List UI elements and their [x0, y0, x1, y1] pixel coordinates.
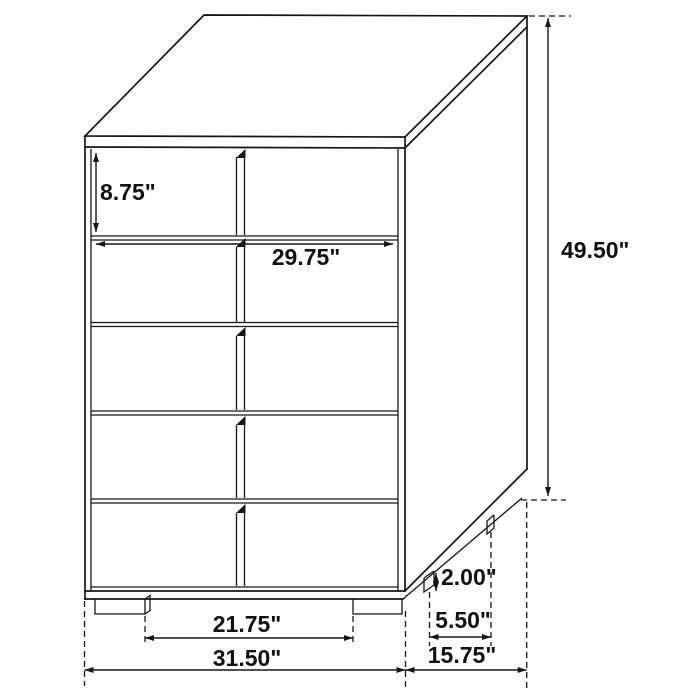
dim-label-overall-width: 31.50" — [213, 645, 281, 671]
top-slab-lower-edge — [85, 27, 527, 148]
diagram-canvas: 8.75" 29.75" 49.50" 2.00" 5.50" 21.75" 3… — [0, 0, 700, 700]
drawer-separator-3 — [91, 411, 398, 415]
front-right-foot — [353, 599, 402, 614]
front-left-foot — [95, 599, 145, 614]
drawer-handle-2 — [236, 238, 246, 322]
drawer-handle-3 — [236, 327, 246, 410]
dim-label-leg-height: 2.00" — [441, 564, 497, 590]
drawer-separator-4 — [91, 499, 398, 503]
dim-label-overall-depth: 15.75" — [428, 642, 496, 668]
dim-label-side-leg-spacing: 5.50" — [435, 607, 491, 633]
top-face — [85, 15, 527, 137]
dimension-annotations: 8.75" 29.75" 49.50" 2.00" 5.50" 21.75" 3… — [85, 16, 630, 690]
dim-label-overall-height: 49.50" — [561, 237, 629, 263]
dim-label-front-leg-spacing: 21.75" — [213, 611, 281, 637]
chest-drawing — [85, 15, 527, 614]
drawer-handle-4 — [236, 416, 246, 498]
dim-label-drawer-height: 8.75" — [100, 179, 156, 205]
drawer-handles — [236, 149, 246, 586]
dim-label-drawer-width: 29.75" — [272, 244, 340, 270]
chest-top-surface — [85, 15, 527, 148]
drawer-handle-5 — [236, 504, 246, 586]
chest-side-panel — [403, 16, 527, 599]
drawer-handle-1 — [236, 149, 246, 235]
furniture-dimension-diagram: 8.75" 29.75" 49.50" 2.00" 5.50" 21.75" 3… — [0, 0, 700, 700]
drawer-separator-2 — [91, 323, 398, 327]
